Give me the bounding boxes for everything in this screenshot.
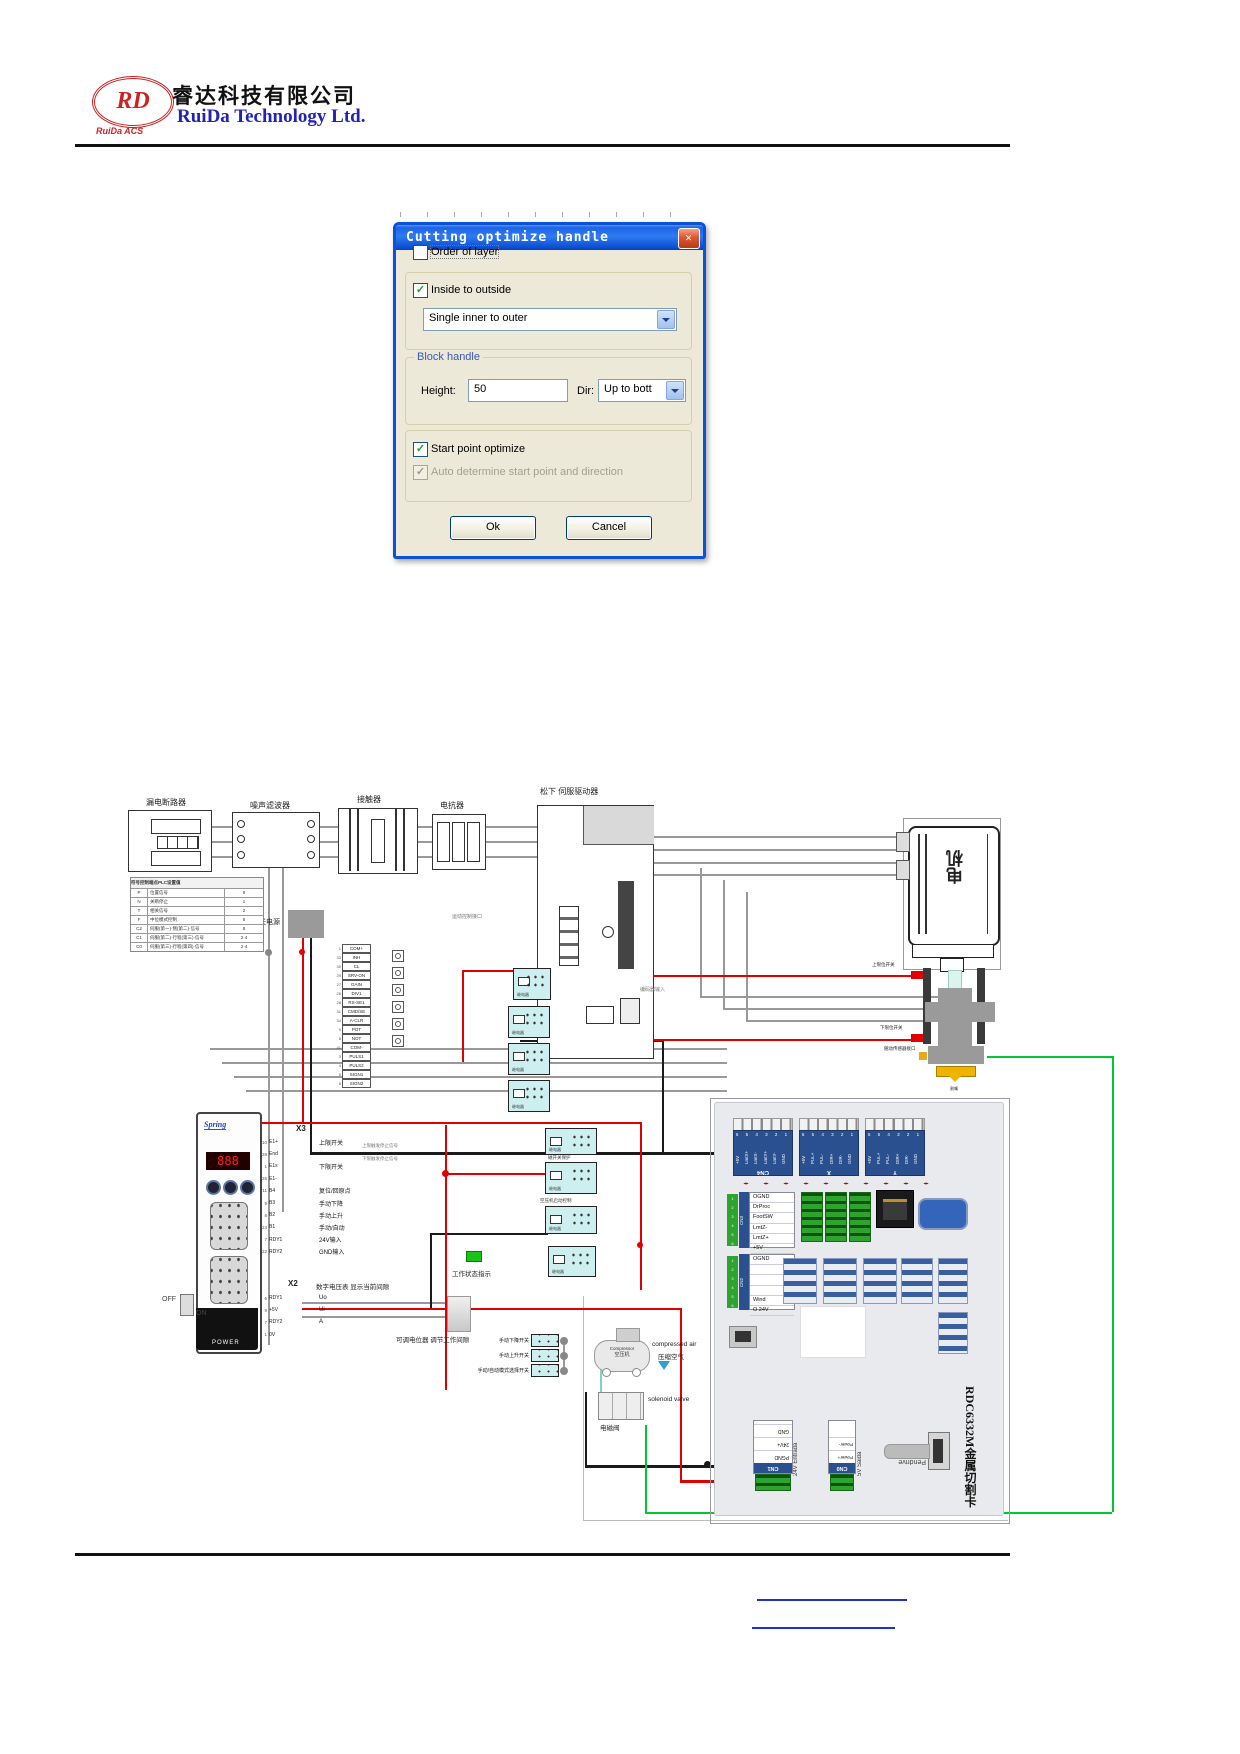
cn4-terminal: 6 5 4 3 2 1 +5VLmtX+LmtX-LmtY+LmtY-GND C… bbox=[733, 1130, 793, 1176]
pin-label: LmtY- bbox=[772, 1139, 781, 1164]
footer-rule bbox=[75, 1553, 1010, 1556]
pin-label: DIR+ bbox=[895, 1139, 904, 1164]
start-point-label: Start point optimize bbox=[431, 443, 525, 455]
leakage-breaker bbox=[128, 810, 212, 872]
ground-wire bbox=[987, 1056, 1112, 1058]
table-row: C0伺服(第三)·行程(第四)·信号2·4 bbox=[131, 942, 263, 951]
encoder-note: 编码器输入 bbox=[640, 986, 665, 993]
start-point-checkbox[interactable]: ✓ bbox=[413, 442, 428, 457]
optocoupler bbox=[392, 1035, 404, 1047]
air-flow-arrow-icon bbox=[658, 1361, 670, 1376]
nozzle-label: 割嘴 bbox=[950, 1086, 958, 1092]
wire bbox=[250, 1122, 640, 1124]
inside-to-outside-checkbox[interactable]: ✓ bbox=[413, 283, 428, 298]
head-block bbox=[928, 1046, 984, 1064]
relay-module: 继电器 bbox=[508, 1080, 550, 1112]
wire bbox=[585, 1392, 587, 1465]
motion-ctrl-note: 运动控制接口 bbox=[452, 913, 482, 920]
x3-pin-row: 10E1+上限开关 bbox=[253, 1136, 351, 1148]
switch-label: 手动/自动模式选择开关 bbox=[455, 1367, 529, 1374]
cutting-optimize-dialog: Cutting optimize handle ✕ Order of layer… bbox=[393, 222, 706, 559]
filter-label: 噪声滤波器 bbox=[250, 800, 290, 811]
voltmeter bbox=[447, 1296, 471, 1332]
wire bbox=[462, 970, 515, 972]
cn1-header: CN1 bbox=[754, 1463, 792, 1473]
manual-switch bbox=[531, 1334, 559, 1347]
wire bbox=[222, 1062, 727, 1064]
logo-rd-text: RD bbox=[116, 88, 149, 114]
io-label-block bbox=[823, 1258, 857, 1304]
green-terminal bbox=[801, 1192, 823, 1242]
table-row: C2伺服(第一)·侧(第二)·信号8 bbox=[131, 924, 263, 933]
contactor-bar bbox=[395, 809, 397, 871]
ground-wire bbox=[1112, 1056, 1114, 1512]
wire bbox=[310, 937, 312, 1152]
pin-label: DIR- bbox=[904, 1139, 913, 1164]
servo-pin: 41COM- bbox=[330, 1043, 371, 1052]
optocoupler bbox=[392, 967, 404, 979]
board-label-square bbox=[800, 1306, 866, 1358]
junction-dot bbox=[442, 1170, 449, 1177]
filter-pin bbox=[237, 820, 245, 828]
cancel-button[interactable]: Cancel bbox=[566, 516, 652, 540]
servo-pin: 29SRV-ON bbox=[330, 971, 371, 980]
optocoupler bbox=[392, 984, 404, 996]
contactor-bar bbox=[357, 809, 359, 871]
col-header: 符号 bbox=[131, 878, 140, 888]
servo-encoder-port bbox=[602, 926, 614, 938]
chevron-down-icon[interactable] bbox=[666, 381, 684, 400]
ethernet-port bbox=[876, 1190, 914, 1228]
servo-pin: 33INH bbox=[330, 953, 371, 962]
breaker-slot bbox=[151, 819, 201, 834]
status-led bbox=[466, 1251, 482, 1262]
company-logo: RD bbox=[92, 76, 174, 128]
voltmeter-note: 数字电压表 显示当前间隙 bbox=[316, 1281, 389, 1291]
height-input[interactable]: 50 bbox=[468, 379, 568, 402]
spring-logo: Spring bbox=[204, 1120, 226, 1130]
pin-label: +5V bbox=[867, 1139, 876, 1164]
breaker-label: 漏电断路器 bbox=[146, 797, 186, 808]
wire bbox=[640, 1122, 642, 1290]
junction-dot bbox=[560, 1337, 568, 1345]
pin-label: DIR+ bbox=[829, 1139, 838, 1164]
ok-button[interactable]: Ok bbox=[450, 516, 536, 540]
relay-module: 继电器 bbox=[513, 968, 551, 1000]
col-header: PLC设置值 bbox=[158, 878, 181, 888]
cn3-row: DrProc bbox=[750, 1203, 794, 1213]
relay-module: 继电器 bbox=[548, 1246, 596, 1277]
solenoid-cn: 电磁阀 bbox=[600, 1422, 620, 1432]
compressor-tank bbox=[616, 1328, 640, 1342]
relay-module: 继电器 bbox=[545, 1162, 597, 1194]
pin-labels: +5VLmtX+LmtX-LmtY+LmtY-GND bbox=[735, 1139, 790, 1164]
relay-title: 空压机启动控制 bbox=[540, 1198, 572, 1204]
x2-pin-row: 10V bbox=[253, 1329, 327, 1341]
manual-switch bbox=[531, 1349, 559, 1362]
junction-dot bbox=[560, 1352, 568, 1360]
x3-pin-row: 9B3手动下降 bbox=[253, 1197, 351, 1209]
pin-label: DIR- bbox=[838, 1139, 847, 1164]
wire bbox=[652, 836, 906, 838]
servo-driver bbox=[537, 805, 654, 1059]
upper-limit-switch bbox=[911, 971, 923, 979]
servo-driver-label: 松下 伺服驱动器 bbox=[540, 786, 598, 797]
panel-button[interactable] bbox=[223, 1180, 238, 1195]
panel-button[interactable] bbox=[240, 1180, 255, 1195]
x3-pin-row: 11B4复位/回原点 bbox=[253, 1185, 351, 1197]
cn2-row: O 24V bbox=[750, 1306, 794, 1316]
optocoupler bbox=[392, 1001, 404, 1013]
pin-label: +5V bbox=[801, 1139, 810, 1164]
sensor-port bbox=[919, 1052, 927, 1060]
optocoupler bbox=[392, 950, 404, 962]
junction-dot bbox=[560, 1367, 568, 1375]
servo-pin: 6SIGN2 bbox=[330, 1079, 371, 1088]
solenoid-valve bbox=[598, 1392, 644, 1420]
x3-label: X3 bbox=[296, 1124, 306, 1133]
cn3-row: +5V bbox=[750, 1244, 794, 1254]
cn3-tab: CN3 bbox=[739, 1192, 749, 1248]
usb-b-port bbox=[729, 1326, 757, 1348]
wire bbox=[640, 975, 915, 977]
table-row: C1伺服(第二)·行程(第三)·信号2·4 bbox=[131, 933, 263, 942]
motor-connector bbox=[896, 832, 910, 852]
io-label-block bbox=[938, 1312, 968, 1354]
green-terminal bbox=[830, 1474, 854, 1491]
servo-pin: 31CMD/SE bbox=[330, 1007, 371, 1016]
lower-limit-label: 下限位开关 bbox=[880, 1025, 903, 1031]
wire bbox=[462, 970, 464, 1062]
col-header: 控制端点 bbox=[140, 878, 158, 888]
x3-pin-row: 1E1s下限开关 bbox=[253, 1160, 351, 1172]
pin-label: LmtY+ bbox=[763, 1139, 772, 1164]
filter-pin bbox=[307, 820, 315, 828]
servo-pin: 26DIV1 bbox=[330, 989, 371, 998]
usb-b-slot bbox=[735, 1331, 751, 1342]
cn1-row: 24V+ bbox=[754, 1437, 792, 1450]
pin-label: PUL- bbox=[885, 1139, 894, 1164]
vga-connector bbox=[918, 1198, 968, 1230]
usb-cap bbox=[884, 1444, 930, 1459]
x3-pin-row: 7RDY124V输入 bbox=[253, 1234, 351, 1246]
wire bbox=[700, 868, 702, 998]
x3-pin-row: 8B2手动上升 bbox=[253, 1209, 351, 1221]
wire bbox=[662, 1040, 664, 1152]
compressor-wheel bbox=[632, 1368, 641, 1377]
motor-flange bbox=[912, 944, 994, 958]
reactor-label: 电抗器 bbox=[440, 800, 464, 811]
x2-pin-row: 6RDY1Uo bbox=[253, 1292, 327, 1304]
contactor-core bbox=[371, 819, 385, 863]
filter-pin bbox=[307, 851, 315, 859]
wire bbox=[310, 1152, 733, 1155]
green-terminal bbox=[849, 1192, 871, 1242]
green-terminal bbox=[755, 1474, 791, 1491]
y-axis-terminal: 6 5 4 3 2 1 +5VPUL+PUL-DIR+DIR-GND Y bbox=[865, 1130, 925, 1176]
relay-module: 继电器 bbox=[508, 1043, 550, 1075]
io-label-block bbox=[901, 1258, 933, 1304]
io-label-block bbox=[783, 1258, 817, 1304]
table-row: T相关信号2 bbox=[131, 906, 263, 915]
contactor-label: 接触器 bbox=[357, 794, 381, 805]
saida-label: 5V Saida bbox=[857, 1421, 863, 1476]
table-header: 符号 控制端点 PLC设置值 bbox=[131, 878, 263, 888]
filter-pin bbox=[237, 851, 245, 859]
usb-a-port bbox=[928, 1432, 950, 1470]
spring-pendant: Spring 888 POWER bbox=[196, 1112, 262, 1354]
chevron-down-icon[interactable] bbox=[657, 310, 675, 329]
wire bbox=[302, 937, 304, 1122]
auto-determine-label: Auto determine start point and direction bbox=[431, 466, 623, 478]
servo-pin: 27GAIN bbox=[330, 980, 371, 989]
contactor bbox=[338, 808, 418, 874]
dc-power-supply bbox=[288, 910, 324, 938]
cn3-row: FootSW bbox=[750, 1213, 794, 1223]
table-body: P位置信号6 N关断停止1 T相关信号2 F中位模式控制6 C2伺服(第一)·侧… bbox=[131, 888, 263, 951]
usb-a-slot bbox=[933, 1439, 943, 1463]
junction-dot bbox=[299, 949, 305, 955]
block-handle-caption: Block handle bbox=[414, 351, 483, 363]
breaker-switch-row bbox=[157, 836, 199, 849]
cn0-rows: Power+Power- bbox=[829, 1437, 855, 1463]
entrada-label: 24V Entrada bbox=[793, 1421, 799, 1476]
reactor-coil bbox=[437, 822, 450, 862]
motor-connector bbox=[896, 860, 910, 880]
wire bbox=[268, 868, 270, 1345]
order-of-layer-label: Order of layer bbox=[431, 246, 498, 258]
reactor bbox=[432, 814, 486, 870]
cn2-green-strip: 123456 bbox=[727, 1256, 738, 1308]
reactor-coil bbox=[467, 822, 480, 862]
limit-note: 上限触发停止信号 bbox=[362, 1143, 398, 1149]
servo-cn-connector bbox=[618, 881, 634, 969]
status-led-row bbox=[736, 1180, 932, 1187]
green-terminal bbox=[825, 1192, 847, 1242]
cn3-row: LmtZ+ bbox=[750, 1234, 794, 1244]
cn3-row: LmtZ- bbox=[750, 1224, 794, 1234]
wire bbox=[430, 1233, 548, 1235]
filter-pin bbox=[237, 835, 245, 843]
x2-pin-row: 9+5VUi bbox=[253, 1304, 327, 1316]
table-row: F中位模式控制6 bbox=[131, 915, 263, 924]
pin-label: GND bbox=[913, 1139, 922, 1164]
pendrive-label: Pendrive bbox=[876, 1458, 926, 1465]
manual-page: RD RuiDa ACS 睿达科技有限公司 RuiDa Technology L… bbox=[0, 0, 1240, 1754]
work-status-label: 工作状态指示 bbox=[452, 1268, 491, 1278]
x3-pin-row: 28End bbox=[253, 1148, 351, 1160]
ethernet-slot bbox=[883, 1199, 907, 1220]
servo-port bbox=[586, 1006, 614, 1024]
relay-title: 磁开关保护 bbox=[548, 1155, 571, 1161]
pin-label: PUL+ bbox=[876, 1139, 885, 1164]
cn0-row: Power+ bbox=[829, 1450, 855, 1463]
cn1-row: PGND bbox=[754, 1450, 792, 1463]
pin-label: LmtX+ bbox=[744, 1139, 753, 1164]
cn3-green-strip: 123456 bbox=[727, 1194, 738, 1246]
junction-dot bbox=[637, 1242, 643, 1248]
on-label: ON bbox=[196, 1310, 207, 1317]
servo-port bbox=[620, 998, 640, 1024]
cn3-terminal: 123456 CN3 OGNDDrProcFootSWLmtZ-LmtZ++5V bbox=[727, 1192, 795, 1248]
wire bbox=[680, 1308, 682, 1480]
cn0-terminal: CN0 Power+Power- bbox=[828, 1420, 856, 1474]
upper-limit-label: 上限位开关 bbox=[872, 962, 895, 968]
pin-numbers: 6 5 4 3 2 1 bbox=[800, 1132, 858, 1137]
cn1-row: GND bbox=[754, 1424, 792, 1437]
panel-button[interactable] bbox=[206, 1180, 221, 1195]
pin-numbers: 6 5 4 3 2 1 bbox=[734, 1132, 792, 1137]
x2-pin-row: 7RDY2A bbox=[253, 1316, 327, 1328]
table-row: N关断停止1 bbox=[131, 897, 263, 906]
servo-pin: 8NOT bbox=[330, 1034, 371, 1043]
pin-labels: +5VPUL+PUL-DIR+DIR-GND bbox=[801, 1139, 856, 1164]
pin-label: LmtX- bbox=[753, 1139, 762, 1164]
filter-pin bbox=[307, 835, 315, 843]
height-label: Height: bbox=[421, 385, 456, 397]
io-label-block bbox=[863, 1258, 897, 1304]
compressor: Compressor 空压机 bbox=[594, 1340, 650, 1372]
cn4-name: CN4 bbox=[734, 1169, 792, 1175]
footer-link[interactable] bbox=[757, 1586, 907, 1601]
wire bbox=[445, 1125, 447, 1390]
db9-connector bbox=[210, 1202, 248, 1250]
servo-pin: 1COM+ bbox=[330, 944, 371, 953]
solenoid-en: solenoid valve bbox=[648, 1396, 689, 1403]
motor-body: 电机 bbox=[908, 826, 1000, 946]
cn1-rows: PGND24V+GND bbox=[754, 1424, 792, 1463]
seven-seg-display: 888 bbox=[206, 1152, 250, 1170]
switch-label: 手动下降开关 bbox=[455, 1337, 529, 1344]
wire bbox=[430, 1233, 432, 1308]
order-of-layer-checkbox[interactable] bbox=[413, 245, 428, 260]
db9-connector bbox=[210, 1256, 248, 1304]
x-axis-terminal: 6 5 4 3 2 1 +5VPUL+PUL-DIR+DIR-GND X bbox=[799, 1130, 859, 1176]
pin-label: PUL- bbox=[819, 1139, 828, 1164]
reactor-coil bbox=[452, 822, 465, 862]
pin-label: GND bbox=[847, 1139, 856, 1164]
dir-label: Dir: bbox=[577, 385, 594, 397]
dialog-title: Cutting optimize handle bbox=[406, 230, 609, 245]
compressed-air-en: compressed air bbox=[652, 1341, 696, 1348]
cn0-header: CN0 bbox=[829, 1463, 855, 1473]
wire bbox=[652, 862, 906, 864]
wire bbox=[746, 1020, 926, 1022]
servo-pin-strip: 1COM+ 33INH 30CL 29SRV-ON 27GAIN 26DIV1 … bbox=[330, 944, 371, 1088]
y-name: Y bbox=[866, 1169, 924, 1175]
wire bbox=[302, 1308, 680, 1310]
cn1-terminal: CN1 PGND24V+GND bbox=[753, 1420, 793, 1474]
noise-filter bbox=[232, 812, 320, 868]
follow-sensor-label: 随动传感器接口 bbox=[884, 1046, 916, 1052]
wire bbox=[746, 892, 748, 1022]
pin-labels: +5VPUL+PUL-DIR+DIR-GND bbox=[867, 1139, 922, 1164]
optocoupler bbox=[392, 1018, 404, 1030]
wire bbox=[652, 874, 906, 876]
card-caption: RDC6332M金属切割卡 bbox=[962, 1386, 979, 1518]
servo-pin: 34A-CLR bbox=[330, 1016, 371, 1025]
power-switch[interactable] bbox=[180, 1294, 194, 1316]
servo-pin: 4PULS2 bbox=[330, 1061, 371, 1070]
compressed-air-cn: 压缩空气 bbox=[658, 1351, 684, 1361]
limit-note: 下限触发停止信号 bbox=[362, 1156, 398, 1162]
compressor-cn: 空压机 bbox=[595, 1351, 649, 1358]
servo-pin: 30CL bbox=[330, 962, 371, 971]
off-label: OFF bbox=[162, 1296, 176, 1303]
wire bbox=[583, 1296, 584, 1520]
junction-dot bbox=[265, 949, 272, 956]
x3-pin-list: 10E1+上限开关 28End 1E1s下限开关 25E1- 11B4复位/回原… bbox=[253, 1136, 351, 1258]
breaker-slot bbox=[151, 851, 201, 866]
close-icon[interactable]: ✕ bbox=[678, 228, 700, 249]
cn2-tab: CN2 bbox=[739, 1254, 749, 1310]
servo-pin: 3PULS1 bbox=[330, 1052, 371, 1061]
servo-top-panel bbox=[583, 806, 654, 845]
contactor-bar bbox=[349, 809, 351, 871]
ruler-ticks bbox=[400, 212, 692, 217]
io-label-block bbox=[938, 1258, 968, 1304]
wire bbox=[234, 1076, 727, 1078]
footer-link[interactable] bbox=[752, 1614, 895, 1629]
x2-pin-list: 6RDY1Uo 9+5VUi 7RDY2A 10V bbox=[253, 1292, 327, 1341]
dir-select[interactable]: Up to bott bbox=[598, 379, 686, 402]
inside-to-outside-label: Inside to outside bbox=[431, 284, 511, 296]
manual-switch bbox=[531, 1364, 559, 1377]
auto-determine-checkbox: ✓ bbox=[413, 465, 428, 480]
compressor-wheel bbox=[602, 1368, 611, 1377]
cn0-row: Power- bbox=[829, 1437, 855, 1450]
motor-line bbox=[987, 834, 989, 934]
cn3-rows: OGNDDrProcFootSWLmtZ-LmtZ++5V bbox=[749, 1192, 795, 1248]
table-row: P位置信号6 bbox=[131, 888, 263, 897]
servo-pin: 28RS-SE1 bbox=[330, 998, 371, 1007]
servo-pin: 9POT bbox=[330, 1025, 371, 1034]
motor-label: 电机 bbox=[944, 850, 969, 884]
power-label: POWER bbox=[212, 1340, 240, 1346]
pin-label: GND bbox=[781, 1139, 790, 1164]
inner-to-outer-select[interactable]: Single inner to outer bbox=[423, 308, 677, 331]
cn3-row: OGND bbox=[750, 1193, 794, 1203]
wire bbox=[700, 996, 940, 998]
relay-module: 继电器 bbox=[545, 1128, 597, 1155]
relay-module: 继电器 bbox=[508, 1006, 550, 1038]
wire bbox=[445, 1173, 547, 1175]
company-name-en: RuiDa Technology Ltd. bbox=[177, 106, 365, 128]
lower-limit-switch bbox=[911, 1034, 923, 1042]
wire bbox=[246, 1090, 727, 1092]
pin-label: PUL+ bbox=[810, 1139, 819, 1164]
x3-pin-row: 24B1手动/自动 bbox=[253, 1221, 351, 1233]
dir-value: Up to bott bbox=[604, 383, 652, 395]
inner-to-outer-value: Single inner to outer bbox=[429, 312, 527, 324]
pin-label: +5V bbox=[735, 1139, 744, 1164]
ground-wire bbox=[645, 1425, 647, 1512]
pin-numbers: 6 5 4 3 2 1 bbox=[866, 1132, 924, 1137]
motor-line bbox=[925, 834, 927, 934]
wire bbox=[723, 880, 725, 1010]
wire bbox=[645, 1039, 915, 1041]
contactor-bar bbox=[403, 809, 405, 871]
servo-pin: 5SIGN1 bbox=[330, 1070, 371, 1079]
servo-connector bbox=[559, 906, 579, 966]
x3-pin-row: 22RDY2GND输入 bbox=[253, 1246, 351, 1258]
x2-label: X2 bbox=[288, 1279, 298, 1288]
logo-subtitle: RuiDa ACS bbox=[96, 126, 143, 136]
parameter-table: 符号 控制端点 PLC设置值 P位置信号6 N关断停止1 T相关信号2 F中位模… bbox=[130, 877, 264, 952]
wire bbox=[723, 1008, 940, 1010]
x-name: X bbox=[800, 1169, 858, 1175]
switch-label: 手动上升开关 bbox=[455, 1352, 529, 1359]
